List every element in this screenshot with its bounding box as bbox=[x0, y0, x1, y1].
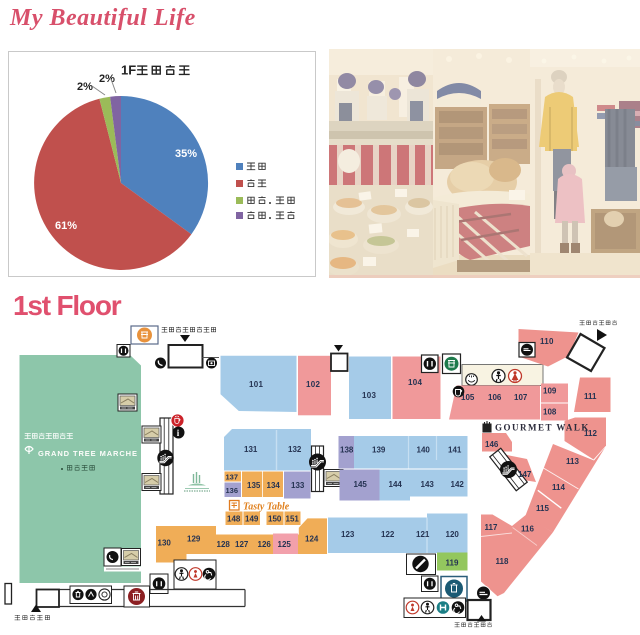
svg-text:110: 110 bbox=[540, 337, 554, 346]
svg-text:2%: 2% bbox=[77, 81, 93, 93]
svg-text:124: 124 bbox=[305, 535, 319, 544]
svg-text:113: 113 bbox=[566, 457, 579, 466]
svg-text:133: 133 bbox=[291, 481, 305, 490]
svg-text:104: 104 bbox=[408, 378, 422, 387]
svg-text:119: 119 bbox=[446, 559, 459, 568]
svg-text:147: 147 bbox=[518, 470, 532, 479]
svg-text:126: 126 bbox=[258, 540, 272, 549]
svg-text:146: 146 bbox=[485, 440, 499, 449]
svg-text:GOURMET WALK: GOURMET WALK bbox=[495, 423, 590, 433]
svg-text:140: 140 bbox=[417, 446, 431, 455]
svg-text:122: 122 bbox=[381, 530, 395, 539]
svg-text:123: 123 bbox=[341, 530, 355, 539]
svg-text:103: 103 bbox=[362, 391, 376, 400]
svg-text:139: 139 bbox=[372, 446, 386, 455]
svg-text:117: 117 bbox=[485, 523, 498, 532]
svg-text:109: 109 bbox=[543, 387, 557, 396]
svg-text:150: 150 bbox=[268, 515, 282, 524]
svg-text:141: 141 bbox=[448, 446, 462, 455]
svg-text:127: 127 bbox=[235, 540, 249, 549]
svg-text:101: 101 bbox=[249, 380, 263, 389]
svg-text:151: 151 bbox=[286, 515, 300, 524]
svg-text:138: 138 bbox=[340, 446, 354, 455]
svg-text:143: 143 bbox=[421, 480, 435, 489]
svg-text:107: 107 bbox=[514, 393, 528, 402]
svg-text:125: 125 bbox=[278, 540, 292, 549]
svg-text:131: 131 bbox=[244, 445, 258, 454]
svg-text:142: 142 bbox=[451, 480, 465, 489]
svg-text:102: 102 bbox=[306, 380, 320, 389]
svg-text:118: 118 bbox=[496, 557, 509, 566]
svg-text:128: 128 bbox=[217, 540, 231, 549]
svg-text:129: 129 bbox=[187, 535, 201, 544]
svg-text:61%: 61% bbox=[55, 220, 77, 232]
svg-text:145: 145 bbox=[354, 480, 368, 489]
svg-text:121: 121 bbox=[416, 530, 430, 539]
svg-text:35%: 35% bbox=[175, 148, 197, 160]
svg-text:Tasty Table: Tasty Table bbox=[243, 502, 290, 513]
svg-text:106: 106 bbox=[488, 393, 502, 402]
svg-text:108: 108 bbox=[543, 408, 557, 417]
svg-text:137: 137 bbox=[226, 473, 239, 482]
svg-text:134: 134 bbox=[267, 481, 281, 490]
svg-text:120: 120 bbox=[446, 530, 460, 539]
svg-text:136: 136 bbox=[226, 486, 239, 495]
svg-text:114: 114 bbox=[552, 483, 565, 492]
svg-text:116: 116 bbox=[521, 525, 534, 534]
svg-text:130: 130 bbox=[158, 539, 172, 548]
svg-text:111: 111 bbox=[584, 392, 597, 401]
svg-text:144: 144 bbox=[389, 480, 403, 489]
svg-text:132: 132 bbox=[288, 445, 302, 454]
svg-text:148: 148 bbox=[227, 515, 241, 524]
svg-text:115: 115 bbox=[536, 504, 549, 513]
svg-text:1F: 1F bbox=[121, 63, 136, 78]
svg-text:GRAND TREE MARCHE: GRAND TREE MARCHE bbox=[38, 449, 138, 458]
svg-text:135: 135 bbox=[247, 481, 261, 490]
svg-text:149: 149 bbox=[245, 515, 259, 524]
